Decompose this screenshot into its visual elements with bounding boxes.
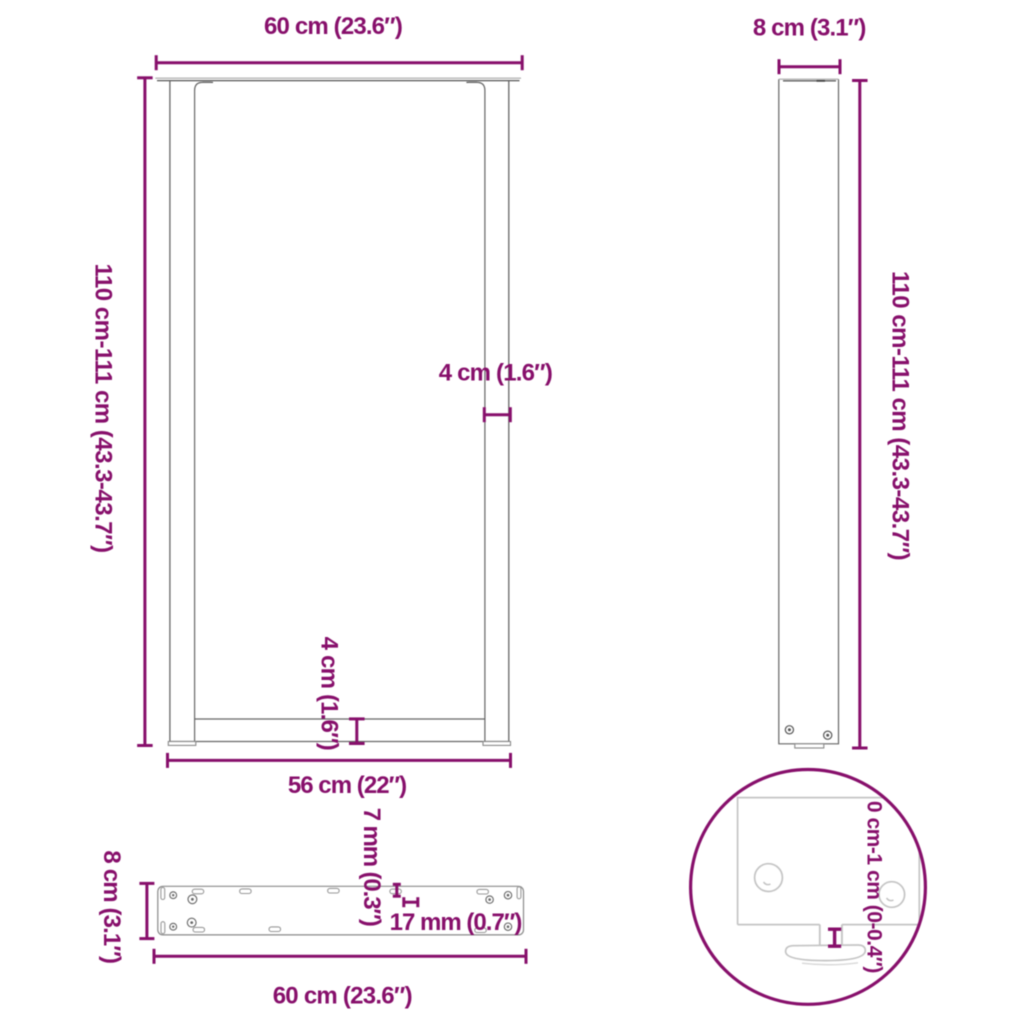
svg-text:110 cm-111 cm (43.3-43.7″): 110 cm-111 cm (43.3-43.7″)	[90, 263, 117, 552]
svg-text:0 cm-1 cm (0-0.4″): 0 cm-1 cm (0-0.4″)	[863, 801, 886, 973]
svg-text:110 cm-111 cm (43.3-43.7″): 110 cm-111 cm (43.3-43.7″)	[887, 271, 914, 560]
svg-text:8 cm (3.1″): 8 cm (3.1″)	[753, 15, 866, 42]
svg-text:7 mm (0.3″): 7 mm (0.3″)	[358, 808, 385, 926]
svg-text:4 cm (1.6″): 4 cm (1.6″)	[439, 360, 552, 387]
svg-text:56 cm (22″): 56 cm (22″)	[288, 772, 406, 799]
svg-text:60 cm (23.6″): 60 cm (23.6″)	[264, 13, 402, 40]
svg-text:4 cm (1.6″): 4 cm (1.6″)	[316, 637, 343, 750]
svg-text:8 cm (3.1″): 8 cm (3.1″)	[98, 850, 125, 963]
svg-text:17 mm (0.7″): 17 mm (0.7″)	[390, 909, 522, 936]
svg-text:60 cm (23.6″): 60 cm (23.6″)	[273, 983, 412, 1010]
